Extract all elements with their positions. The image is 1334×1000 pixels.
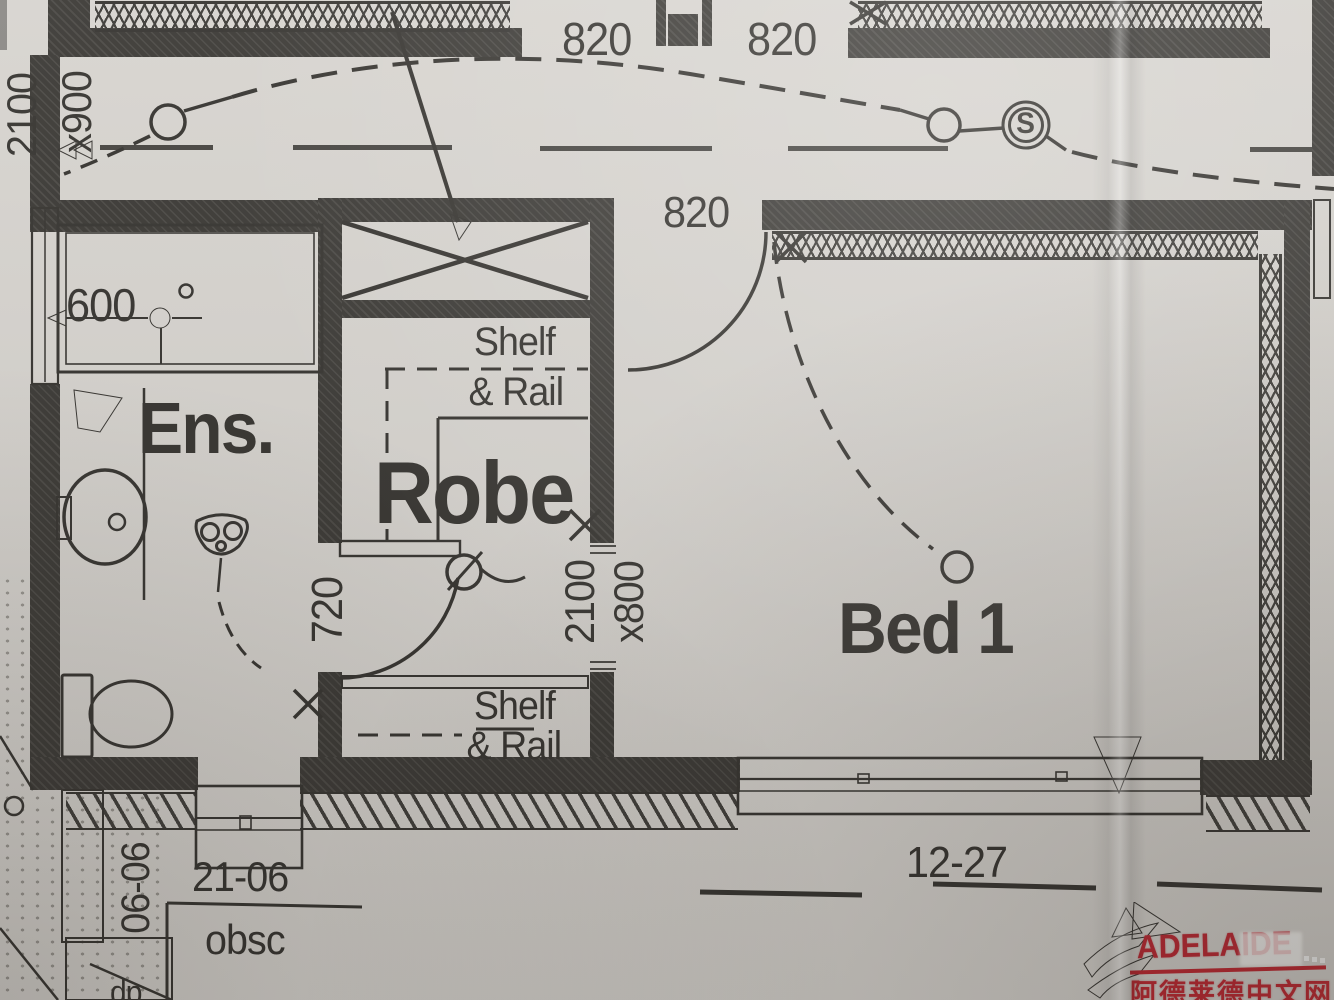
robe-lower-shelf-label: Shelf: [458, 684, 571, 729]
dim-vanity-width: 600: [66, 278, 135, 332]
porch-post: [62, 790, 103, 942]
watermark: ADELAIDE 阿德莱德中文网: [1078, 898, 1334, 1000]
smoke-alarm-letter: S: [1011, 107, 1039, 141]
dim-hall-door-width: x900: [57, 56, 97, 169]
window-code-bed1: 12-27: [906, 838, 1007, 888]
light-symbol-hall-right: [928, 109, 960, 141]
dim-robe-wall-720: 720: [308, 558, 348, 661]
diameter-symbol: [180, 285, 193, 298]
dim-door-820-left: 820: [562, 12, 631, 66]
door-swing-robe: [340, 578, 458, 678]
downpipe-label: dp: [110, 974, 142, 1000]
floorplan-photo: 2100 x900 820 820 820 600 Ens. Robe Bed …: [0, 0, 1334, 1000]
electrical-bed1: [774, 242, 972, 582]
dim-robe-door-width: x800: [609, 546, 649, 659]
robe-upper-rail-label: & Rail: [450, 370, 582, 415]
watermark-dots: [1304, 956, 1309, 961]
window-marker-triangle: [1094, 737, 1141, 793]
robe-upper-shelf-label: Shelf: [458, 320, 571, 365]
plan-linework: [0, 0, 1334, 1000]
annotation-arrow: [392, 12, 471, 240]
exterior-step-lines: [0, 736, 362, 1000]
window-code-ens-side: 06-06: [116, 836, 156, 939]
dim-door-820-right: 820: [747, 12, 816, 66]
room-label-ensuite: Ens.: [138, 388, 273, 470]
door-swing-bed1: [628, 232, 766, 370]
window-code-ens-front: 21-06: [192, 853, 288, 901]
light-symbol-bed1: [942, 552, 972, 582]
exhaust-fan-symbol: [196, 515, 261, 668]
jamb-outside-right: [1314, 200, 1330, 298]
room-label-bed1: Bed 1: [838, 588, 1013, 670]
light-symbol-hall-left: [151, 105, 185, 139]
dimension-underlines: [700, 884, 1322, 895]
dim-robe-door-height: 2100: [560, 546, 600, 659]
window-glazing-obscure: obsc: [205, 916, 285, 964]
watermark-site-name: 阿德莱德中文网: [1130, 972, 1333, 1000]
dim-hall-door-height: 2100: [2, 59, 42, 172]
watermark-blur-box: [1240, 932, 1302, 966]
shower-rose-mark: [74, 390, 122, 432]
room-label-robe: Robe: [374, 442, 573, 544]
linen-cupboard-cross: [342, 222, 588, 298]
toilet-symbol: [62, 675, 172, 757]
electrical-hall-run: [64, 59, 1334, 189]
dim-door-820-bed1: 820: [663, 188, 729, 238]
window-bed1: [738, 758, 1202, 814]
robe-lower-rail-label: & Rail: [448, 724, 580, 769]
light-symbol-robe: [447, 552, 525, 590]
downpipe-symbol: [5, 797, 23, 815]
basin-symbol: [57, 470, 146, 564]
